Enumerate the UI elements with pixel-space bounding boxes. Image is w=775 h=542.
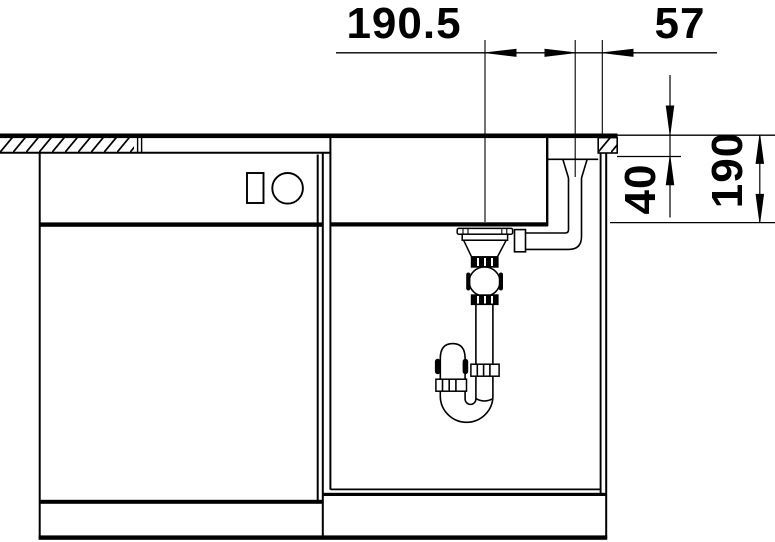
trap-ring-right xyxy=(463,359,469,374)
arrow-down-190 xyxy=(756,194,763,222)
overflow-funnel-left xyxy=(563,160,569,178)
arrow-left-57 xyxy=(604,49,634,56)
trap-slip-nut-tailpipe xyxy=(471,364,499,376)
drawing-svg xyxy=(0,0,775,542)
strainer-flange-top xyxy=(457,228,512,234)
overflow-funnel-right xyxy=(582,160,588,178)
overflow-pipe xyxy=(515,160,588,252)
ball-joint-ring-left xyxy=(466,273,470,291)
dimension-label-drain-to-overflow: 190.5 xyxy=(334,0,474,48)
strainer-cup xyxy=(464,240,507,257)
trap-dome-top xyxy=(440,344,465,359)
plinth-bottom-edge xyxy=(39,535,608,539)
siphon-trap xyxy=(435,344,499,423)
drain-ball-joint xyxy=(469,267,500,296)
overflow-pipe-outer xyxy=(526,178,582,249)
countertop-hatch-right-block xyxy=(598,138,617,153)
dimension-label-overflow-to-edge: 57 xyxy=(642,0,718,48)
door-bottom-edge xyxy=(39,500,323,504)
technical-drawing-canvas: 190.5 57 40 190 xyxy=(0,0,775,542)
ball-joint-ring-right xyxy=(499,273,503,291)
overflow-coupling-nut xyxy=(515,230,526,252)
drawer-door-divider xyxy=(39,222,323,226)
arrow-right-190-5 xyxy=(545,49,575,56)
arrow-left-190-5 xyxy=(487,49,517,56)
countertop-top-surface xyxy=(0,134,618,139)
strainer-flange-lower xyxy=(462,234,507,240)
arrow-up-190 xyxy=(756,136,763,164)
dimension-label-countertop-thickness: 40 xyxy=(616,144,666,234)
trap-ring-left xyxy=(435,359,441,374)
basin-bottom xyxy=(330,222,547,226)
arrow-down-40 xyxy=(666,106,673,134)
arrow-up-40 xyxy=(666,157,673,185)
appliance-control-rect xyxy=(247,173,264,203)
dimension-label-bowl-depth: 190 xyxy=(703,125,753,215)
cabinet-left xyxy=(39,153,323,539)
appliance-knob-circle xyxy=(272,173,303,204)
tailpipe-end-arc xyxy=(476,399,493,401)
cabinet-floor-outer xyxy=(324,493,608,496)
cabinet-right xyxy=(39,138,608,540)
trap-slip-nut-dome xyxy=(436,379,467,391)
countertop-hatch-left xyxy=(0,138,134,153)
countertop xyxy=(0,134,618,154)
sink-basin xyxy=(330,138,598,227)
